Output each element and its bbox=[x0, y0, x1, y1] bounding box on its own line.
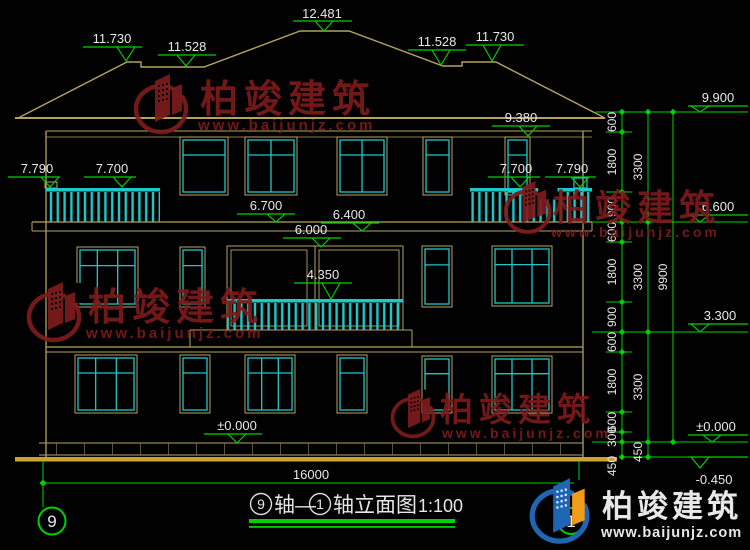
elevation-value: 7.700 bbox=[96, 161, 129, 176]
balcony-railing-3f-left bbox=[45, 182, 160, 222]
elevation-marker-right-chain-top: 9.900 bbox=[688, 90, 748, 112]
chain-dimension: 600 bbox=[605, 112, 619, 132]
watermark: 柏竣建筑www.baijunjz.com bbox=[29, 282, 264, 342]
elevation-marker-right-chain-zero: ±0.000 bbox=[688, 419, 748, 442]
drawing-title: 9 轴— 1 轴立面图 1:100 bbox=[249, 494, 463, 528]
svg-text:9: 9 bbox=[47, 512, 56, 531]
brand-logo-url: www.baijunjz.com bbox=[600, 525, 742, 541]
title-scale: 1:100 bbox=[418, 496, 463, 516]
elevation-value: 7.790 bbox=[556, 161, 589, 176]
elevation-marker-site-level: -0.450 bbox=[688, 457, 748, 487]
chain-dimension: 9900 bbox=[656, 263, 670, 290]
elevation-marker-ridge-left-low: 11.528 bbox=[158, 39, 216, 66]
chain-dimension: 450 bbox=[631, 442, 645, 462]
elevation-marker-balcony3f-left-post: 7.790 bbox=[8, 161, 60, 187]
chain-dimension: 3300 bbox=[631, 153, 645, 180]
window bbox=[180, 355, 210, 413]
window bbox=[337, 137, 387, 195]
elevation-value: ±0.000 bbox=[696, 419, 736, 434]
watermark-brand: 柏竣建筑 bbox=[200, 79, 376, 121]
ground-line bbox=[15, 457, 617, 462]
watermark-url: www.baijunjz.com bbox=[197, 117, 375, 134]
watermark: 柏竣建筑www.baijunjz.com bbox=[392, 389, 610, 441]
watermark-url: www.baijunjz.com bbox=[441, 425, 611, 441]
chain-dimension: 3300 bbox=[631, 263, 645, 290]
elevation-marker-ridge-main: 12.481 bbox=[293, 6, 352, 31]
watermark-brand: 柏竣建筑 bbox=[88, 287, 264, 329]
chain-dimension: 3300 bbox=[631, 373, 645, 400]
watermark: 柏竣建筑www.baijunjz.com bbox=[136, 74, 376, 134]
elevation-value: 6.700 bbox=[250, 198, 283, 213]
elevation-value: 9.900 bbox=[702, 90, 735, 105]
elevation-value: ±0.000 bbox=[217, 418, 257, 433]
window bbox=[245, 355, 295, 413]
elevation-marker-cornice-mid: 6.400 bbox=[321, 207, 379, 231]
title-axis-start: 9 bbox=[257, 496, 265, 512]
elevation-marker-ridge-right-high: 11.730 bbox=[466, 29, 524, 61]
elevation-marker-ridge-right-low: 11.528 bbox=[408, 34, 466, 65]
elevation-value: 11.730 bbox=[476, 29, 515, 44]
window bbox=[422, 246, 452, 307]
elevation-value: 11.730 bbox=[93, 31, 132, 46]
window bbox=[75, 355, 137, 413]
chain-dimension: 900 bbox=[605, 307, 619, 327]
title-segment2: 轴立面图 bbox=[333, 494, 417, 517]
elevation-value: 7.700 bbox=[500, 161, 533, 176]
elevation-marker-balcony3f-left-rail: 7.700 bbox=[84, 161, 136, 187]
watermark-url: www.baijunjz.com bbox=[550, 224, 720, 240]
elevation-marker-ground-zero: ±0.000 bbox=[204, 418, 262, 443]
elevation-marker-right-chain-2f: 3.300 bbox=[688, 308, 748, 332]
elevation-value: 6.400 bbox=[333, 207, 366, 222]
elevation-value: 11.528 bbox=[168, 39, 207, 54]
elevation-marker-eave-fascia: 9.380 bbox=[492, 110, 550, 136]
elevation-value: 11.528 bbox=[418, 34, 457, 49]
elevation-value: 9.380 bbox=[505, 110, 538, 125]
watermark-url: www.baijunjz.com bbox=[85, 325, 263, 342]
elevation-value: -0.450 bbox=[696, 472, 733, 487]
chain-dimension: 600 bbox=[605, 332, 619, 352]
title-axis-end: 1 bbox=[316, 496, 324, 512]
elevation-drawing-canvas: 12.48111.73011.52811.52811.7309.3809.900… bbox=[0, 0, 750, 550]
watermark-brand: 柏竣建筑 bbox=[440, 391, 596, 428]
elevation-marker-balcony2f-rail: 4.350 bbox=[294, 267, 352, 299]
elevation-value: 12.481 bbox=[302, 6, 342, 21]
elevation-value: 6.000 bbox=[295, 222, 328, 237]
elevation-value: 3.300 bbox=[704, 308, 737, 323]
elevation-value: 4.350 bbox=[307, 267, 340, 282]
window bbox=[245, 137, 297, 195]
elevation-marker-floor-3f: 6.000 bbox=[283, 222, 341, 247]
brand-logo-name: 柏竣建筑 bbox=[602, 489, 742, 524]
watermark-brand: 柏竣建筑 bbox=[553, 187, 721, 228]
elevation-marker-ridge-left-high: 11.730 bbox=[83, 31, 142, 61]
chain-dimension: 450 bbox=[605, 456, 619, 476]
chain-dimension: 1800 bbox=[605, 258, 619, 285]
window bbox=[492, 246, 552, 306]
window bbox=[423, 137, 452, 195]
elevation-marker-cornice-left: 6.700 bbox=[237, 198, 295, 222]
axis-bubble-left: 9 bbox=[39, 508, 66, 535]
total-width-dimension: 16000 bbox=[293, 467, 329, 482]
window bbox=[337, 355, 367, 413]
chain-dimension: 1800 bbox=[605, 368, 619, 395]
chain-dimension: 1800 bbox=[605, 148, 619, 175]
elevation-value: 7.790 bbox=[21, 161, 54, 176]
window bbox=[180, 137, 228, 195]
